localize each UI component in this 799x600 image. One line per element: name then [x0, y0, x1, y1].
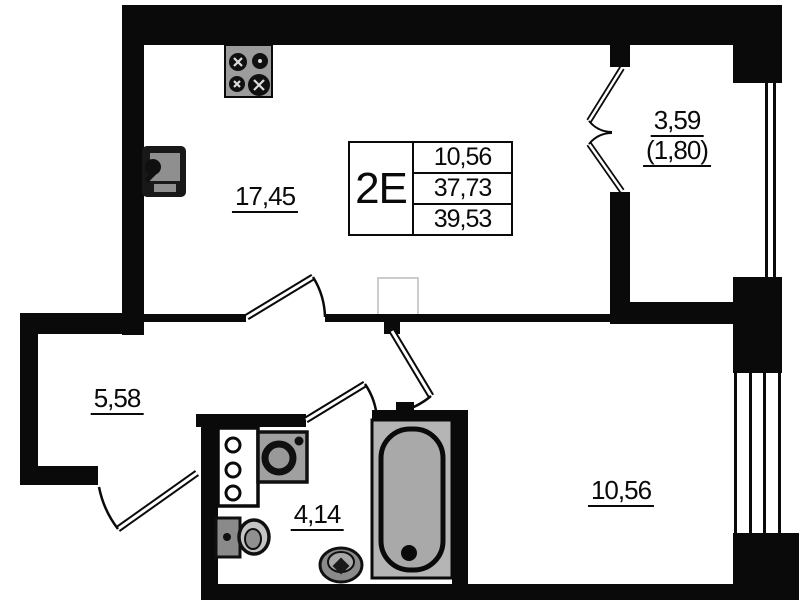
bathtub-drain — [401, 545, 417, 561]
toilet-icon — [216, 518, 269, 557]
wall-segment — [20, 466, 98, 485]
living-kitchen-area-label: 17,45 — [232, 183, 298, 213]
kitchen-sink-icon — [142, 146, 186, 197]
wall-segment — [20, 313, 142, 334]
unit-total-area-value: 39,53 — [413, 204, 512, 235]
door-entrance — [99, 473, 197, 529]
window-line — [778, 373, 781, 533]
bedroom-area-label: 10,56 — [588, 477, 654, 507]
wall-segment — [733, 533, 799, 584]
wall-segment — [122, 5, 144, 335]
floor-plan-drawing — [0, 0, 799, 600]
washing-machine-icon — [258, 432, 307, 482]
wall-segment — [196, 414, 306, 427]
round-basin-icon — [320, 548, 362, 582]
unit-stat-table: 2E 10,56 37,73 39,53 — [348, 141, 513, 236]
hallway-area-label: 5,58 — [91, 385, 144, 415]
bathroom-area-label: 4,14 — [291, 501, 344, 531]
vent-shaft-outline — [378, 278, 418, 315]
door-balcony — [589, 68, 622, 191]
wall-segment — [201, 584, 799, 600]
wall-segment — [142, 314, 246, 322]
unit-living-area-value: 10,56 — [413, 142, 512, 173]
window-line — [734, 373, 737, 533]
bathtub-icon — [372, 420, 452, 578]
unit-apartment-area-value: 37,73 — [413, 173, 512, 204]
window-line — [749, 373, 752, 533]
wall-segment — [610, 45, 630, 67]
wall-segment — [201, 414, 218, 600]
balcony-glazing — [765, 83, 776, 277]
wall-segment — [733, 277, 782, 373]
door-bathroom — [306, 384, 377, 420]
unit-type-label: 2E — [349, 142, 413, 235]
balcony-reduced-area-label: (1,80) — [643, 137, 711, 167]
door-living — [247, 277, 325, 317]
balcony-area-label: 3,59 — [651, 107, 704, 137]
door-bedroom — [392, 331, 431, 412]
glazing-line — [773, 83, 776, 277]
glazing-line — [765, 83, 768, 277]
bedroom-window — [734, 373, 781, 533]
stove-icon — [225, 45, 272, 97]
wall-segment — [452, 410, 468, 584]
floor-plan: 17,45 5,58 4,14 10,56 3,59 (1,80) 2E 10,… — [0, 0, 799, 600]
wall-segment — [610, 302, 733, 324]
wall-segment — [122, 5, 782, 45]
wall-segment — [325, 314, 611, 322]
wall-segment — [20, 313, 38, 484]
window-line — [763, 373, 766, 533]
cabinet-icon — [218, 428, 258, 506]
wall-segment — [733, 45, 782, 83]
